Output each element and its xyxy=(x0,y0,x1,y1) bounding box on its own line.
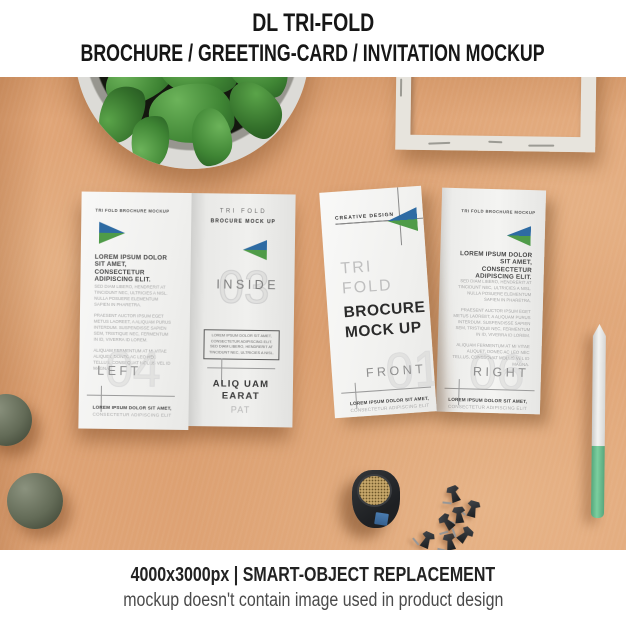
footer-line-2: mockup doesn't contain image used in pro… xyxy=(123,590,503,612)
stamp-cork-top xyxy=(357,474,392,507)
push-pin xyxy=(445,484,464,504)
brand-text: TRI FOLD BROCHURE MOCKUP xyxy=(461,208,535,215)
cover-title-light: TRI FOLD xyxy=(340,255,405,299)
panel-heading: LOREM IPSUM DOLOR SIT AMET, CONSECTETUR … xyxy=(450,250,533,282)
push-pin xyxy=(417,530,436,550)
divider-line xyxy=(207,367,275,369)
panel-footer-bold: LOREM IPSUM DOLOR SIT AMET, xyxy=(93,405,172,411)
frame-distress-mark xyxy=(428,142,450,145)
mockup-photo: TRI FOLD BROCHURE MOCKUP LOREM IPSUM DOL… xyxy=(0,77,626,550)
panel-tab-label: INSIDE xyxy=(216,277,279,292)
panel-tab-label: RIGHT xyxy=(473,365,530,381)
brand-text: TRI FOLD BROCHURE MOCKUP xyxy=(95,208,169,214)
brand-text: TRI FOLD xyxy=(191,208,295,215)
frame-distress-mark xyxy=(528,145,554,147)
play-triangle-icon xyxy=(507,225,532,246)
header-band: DL TRI-FOLD BROCHURE / GREETING-CARD / I… xyxy=(0,0,626,77)
stone-sphere xyxy=(0,394,32,446)
pen-barrel xyxy=(592,324,606,446)
frame-distress-mark xyxy=(488,141,502,144)
paragraph: SED DIAM LIBERO, HENDRERIT AT TINCIDUNT … xyxy=(94,284,172,309)
brochure-open: TRI FOLD BROCHURE MOCKUP LOREM IPSUM DOL… xyxy=(78,192,295,432)
panel-footer-bold: ALIQ UAM EARAT xyxy=(209,378,273,404)
paragraph: PRAESENT AUCTOR IPSUM EGET METUS LAOREET… xyxy=(94,313,172,344)
brochure-panel-left: TRI FOLD BROCHURE MOCKUP LOREM IPSUM DOL… xyxy=(78,192,191,431)
panel-footer-bold: LOREM IPSUM DOLOR SIT AMET, xyxy=(448,397,527,404)
mockup-preview: DL TRI-FOLD BROCHURE / GREETING-CARD / I… xyxy=(0,0,626,626)
panel-footer-light: CONSECTETUR ADIPISCING ELIT xyxy=(93,412,172,418)
title-line-1: DL TRI-FOLD xyxy=(252,9,374,38)
footer-line-1: 4000x3000px | SMART-OBJECT REPLACEMENT xyxy=(131,564,496,587)
brochure-panel-right: TRI FOLD BROCHURE MOCKUP LOREM IPSUM DOL… xyxy=(436,188,546,415)
paragraph: PRAESENT AUCTOR IPSUM EGET METUS LAOREET… xyxy=(452,307,531,339)
brand-text: BROCURE MOCK UP xyxy=(191,218,295,225)
pen xyxy=(591,324,606,518)
panel-footer-light: PAT xyxy=(209,404,273,415)
stone-sphere xyxy=(7,473,63,529)
push-pin xyxy=(464,499,482,518)
boxed-note: LOREM IPSUM DOLOR SIT AMET, CONSECTETUR … xyxy=(203,329,279,360)
rubber-stamp xyxy=(352,470,400,528)
play-triangle-icon xyxy=(243,240,267,260)
panel-tab-label: LEFT xyxy=(97,364,142,379)
paragraph: SED DIAM LIBERO, HENDRERIT AT TINCIDUNT … xyxy=(453,278,532,304)
footer-band: 4000x3000px | SMART-OBJECT REPLACEMENT m… xyxy=(0,550,626,626)
brochure-panel-inside: TRI FOLD BROCURE MOCK UP 03 INSIDE LOREM… xyxy=(188,193,295,427)
pen-grip xyxy=(591,446,605,518)
cover-title-bold: BROCURE MOCK UP xyxy=(343,298,430,343)
potted-plant xyxy=(75,77,309,169)
panel-heading: LOREM IPSUM DOLOR SIT AMET, CONSECTETUR … xyxy=(94,254,176,285)
frame-distress-mark xyxy=(400,79,402,97)
stamp-label xyxy=(374,512,389,526)
panel-footer-light: CONSECTETUR ADIPISCING ELIT xyxy=(448,404,527,411)
title-line-2: BROCHURE / GREETING-CARD / INVITATION MO… xyxy=(81,40,545,68)
picture-frame xyxy=(395,77,597,152)
brochure-panel-front: CREATIVE DESIGN TRI FOLD BROCURE MOCK UP… xyxy=(319,186,437,419)
push-pin xyxy=(454,524,475,545)
play-triangle-icon xyxy=(99,222,125,244)
